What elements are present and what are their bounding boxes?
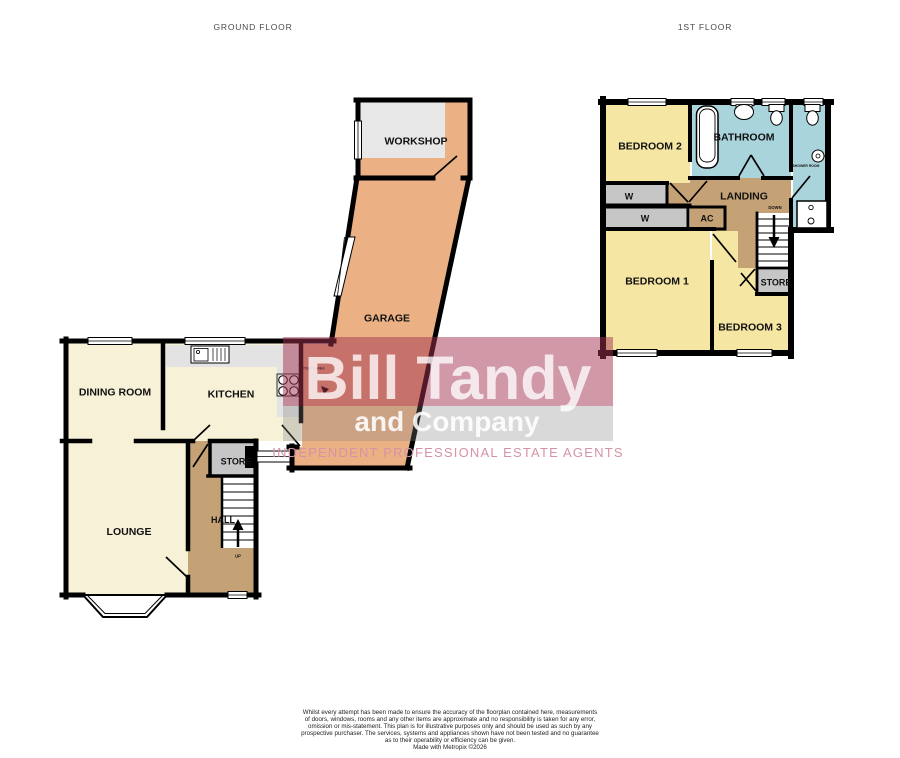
shower-tray [797,201,827,228]
label-store-first: STORE [761,278,792,288]
label-workshop: WORKSHOP [385,136,448,148]
first-floor-plan: BEDROOM 2 BATHROOM SHOWER ROOM W W AC LA… [601,99,831,357]
shower-room-toilet [805,105,820,126]
label-wardrobe-1: W [625,192,634,202]
label-airing-cupboard: AC [701,214,714,224]
room-bedroom-1 [606,231,710,353]
label-landing: LANDING [720,191,768,203]
ground-floor-title: GROUND FLOOR [213,22,292,32]
disclaimer-line-2: of doors, windows, rooms and any other i… [305,716,596,723]
label-bedroom-2: BEDROOM 2 [618,141,682,153]
label-shower-room: SHOWER ROOM [793,164,820,168]
label-garage: GARAGE [364,313,410,325]
kitchen-sink [191,346,229,363]
watermark-name: Bill Tandy [305,344,592,412]
label-bathroom: BATHROOM [713,132,774,144]
bathroom-sink [735,105,754,120]
label-down: DOWN [768,205,781,210]
disclaimer-credit: Made with Metropix ©2026 [413,744,487,751]
room-lounge [66,441,188,595]
label-store-ground: STORE [221,457,252,467]
label-lounge: LOUNGE [107,526,152,538]
disclaimer-line-5: as to their operability or efficiency ca… [385,737,516,744]
label-bedroom-3: BEDROOM 3 [718,322,782,334]
watermark-tagline: INDEPENDENT PROFESSIONAL ESTATE AGENTS [272,445,623,460]
label-kitchen: KITCHEN [208,389,255,401]
wardrobe-1 [606,183,667,205]
first-floor-title: 1ST FLOOR [678,22,732,32]
label-bedroom-1: BEDROOM 1 [625,276,689,288]
floorplan-page: GROUND FLOOR 1ST FLOOR [0,0,900,758]
label-up: UP [235,554,241,559]
disclaimer-line-3: omission or mis-statement. This plan is … [308,723,593,730]
bathroom-toilet [769,105,784,126]
disclaimer-line-1: Whilst every attempt has been made to en… [303,709,597,716]
workshop-inner-area [358,102,445,158]
disclaimer: Whilst every attempt has been made to en… [301,709,599,751]
disclaimer-line-4: prospective purchaser. The services, sys… [301,730,599,737]
label-hall: HALL [211,515,235,525]
label-dining-room: DINING ROOM [79,387,152,399]
label-wardrobe-2: W [641,214,650,224]
floorplan-drawing: GROUND FLOOR 1ST FLOOR [0,0,900,758]
watermark-company: and Company [354,406,540,437]
